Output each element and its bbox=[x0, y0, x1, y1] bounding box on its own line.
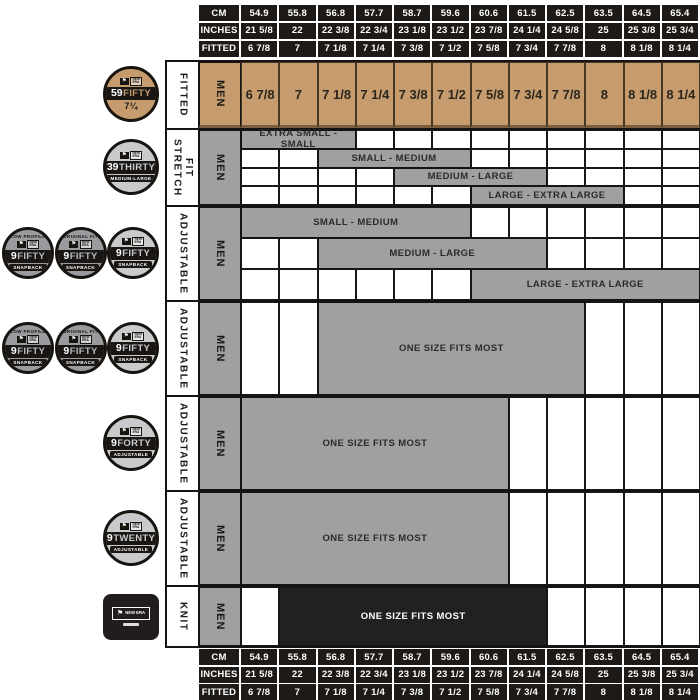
scale-value-cell: 21 5/8 bbox=[241, 23, 277, 39]
scale-value-cell: 6 7/8 bbox=[241, 41, 277, 57]
row-stretch-39thirty: STRETCH FITMENEXTRA SMALL - SMALLSMALL -… bbox=[165, 128, 700, 205]
badge-number: 39 bbox=[107, 161, 119, 173]
new-era-box-logo: NEWERA bbox=[130, 427, 142, 436]
badge-number: 9 bbox=[11, 345, 17, 357]
new-era-box-logo: NEWERA bbox=[80, 335, 92, 344]
size-range-subrow: ONE SIZE FITS MOST bbox=[241, 397, 700, 490]
new-era-box-logo: NEWERA bbox=[132, 237, 144, 246]
scale-value-cell: 62.5 bbox=[547, 649, 583, 665]
scale-value-cell: 55.8 bbox=[279, 5, 315, 21]
empty-size-cell bbox=[279, 269, 317, 300]
scale-value-cell: 24 5/8 bbox=[547, 23, 583, 39]
fitted-size-cell: 6 7/8 bbox=[241, 62, 279, 128]
scale-value-cell: 7 1/8 bbox=[318, 41, 354, 57]
scale-value-cell: 54.9 bbox=[241, 5, 277, 21]
fitted-size-cell: 7 3/8 bbox=[394, 62, 432, 128]
size-range-subrow: ONE SIZE FITS MOST bbox=[241, 302, 700, 395]
badge-9fifty: ORIGINAL FIT⚑NEWERA9FIFTYSNAPBACK bbox=[55, 322, 107, 374]
empty-size-cell bbox=[547, 587, 585, 646]
scale-value-cell: 23 1/2 bbox=[432, 23, 468, 39]
empty-size-cell bbox=[662, 302, 700, 395]
badge-name-band: 59FIFTY bbox=[104, 87, 159, 100]
badge-sub-label: SNAPBACK bbox=[62, 359, 99, 366]
scale-value-cell: 8 1/8 bbox=[624, 41, 660, 57]
category-label-adjustable-9forty: ADJUSTABLE bbox=[165, 397, 199, 490]
scale-value-cell: 58.7 bbox=[394, 5, 430, 21]
new-era-logo-box: ⚑NEW ERA bbox=[112, 607, 150, 620]
scale-value-cell: 22 3/4 bbox=[356, 23, 392, 39]
empty-size-cell bbox=[585, 397, 623, 490]
category-label-knit: KNIT bbox=[165, 587, 199, 646]
scale-row-label: INCHES bbox=[199, 667, 239, 683]
badge-sub-label: MEDIUM-LARGE bbox=[106, 175, 155, 182]
scale-value-cell: 58.7 bbox=[394, 649, 430, 665]
empty-size-cell bbox=[662, 149, 700, 168]
size-range-bar: SMALL - MEDIUM bbox=[241, 207, 471, 238]
size-range-subrow: MEDIUM - LARGE bbox=[241, 168, 700, 187]
empty-size-cell bbox=[356, 130, 394, 149]
size-range-bar: MEDIUM - LARGE bbox=[318, 238, 548, 269]
row-adjustable-9twenty: ADJUSTABLEMENONE SIZE FITS MOST bbox=[165, 490, 700, 585]
fitted-size-cell: 7 7/8 bbox=[547, 62, 585, 128]
new-era-box-logo: NEWERA bbox=[130, 151, 142, 160]
badge-9fifty: LOW PROFILE⚑NEWERA9FIFTYSNAPBACK bbox=[2, 322, 54, 374]
scale-value-cell: 23 1/8 bbox=[394, 667, 430, 683]
flag-icon: ⚑ bbox=[120, 152, 129, 159]
category-label-stretch-39thirty: STRETCH FIT bbox=[165, 130, 199, 205]
empty-size-cell bbox=[509, 397, 547, 490]
row-adjustable-9forty: ADJUSTABLEMENONE SIZE FITS MOST bbox=[165, 395, 700, 490]
empty-size-cell bbox=[624, 186, 662, 205]
scale-value-cell: 25 bbox=[585, 23, 621, 39]
empty-size-cell bbox=[547, 492, 585, 585]
empty-size-cell bbox=[662, 186, 700, 205]
scale-value-cell: 7 7/8 bbox=[547, 41, 583, 57]
scale-value-cell: 7 3/8 bbox=[394, 41, 430, 57]
badge-9twenty: ⚑NEWERA9TWENTYADJUSTABLE bbox=[103, 510, 159, 566]
size-grid-adjustable-9forty: ONE SIZE FITS MOST bbox=[241, 397, 700, 490]
badge-name: FIFTY bbox=[122, 343, 150, 354]
new-era-box-logo: NEWERA bbox=[130, 522, 142, 531]
category-label-fitted-59fifty: FITTED bbox=[165, 62, 199, 128]
badge-lane-adjustable-9fifty-snapback: LOW PROFILE⚑NEWERA9FIFTYSNAPBACKORIGINAL… bbox=[0, 205, 161, 300]
new-era-logos: ⚑NEWERA bbox=[120, 522, 143, 531]
scale-value-cell: 25 bbox=[585, 667, 621, 683]
row-fitted-59fifty: FITTEDMEN6 7/877 1/87 1/47 3/87 1/27 5/8… bbox=[165, 60, 700, 128]
size-range-bar: LARGE - EXTRA LARGE bbox=[471, 269, 700, 300]
new-era-logos: ⚑NEWERA bbox=[120, 151, 143, 160]
empty-size-cell bbox=[241, 587, 279, 646]
badge-name: FORTY bbox=[117, 438, 151, 449]
fitted-size-cell: 7 3/4 bbox=[509, 62, 547, 128]
scale-value-cell: 64.5 bbox=[624, 5, 660, 21]
scale-value-cell: 7 bbox=[279, 684, 315, 700]
scale-value-cell: 55.8 bbox=[279, 649, 315, 665]
badge-name-band: 9TWENTY bbox=[104, 532, 159, 545]
badge-name-band: 9FIFTY bbox=[108, 342, 159, 355]
flag-icon: ⚑ bbox=[69, 241, 78, 248]
badge-name: FIFTY bbox=[123, 88, 151, 99]
scale-value-cell: 7 1/8 bbox=[318, 684, 354, 700]
scale-value-cell: 24 1/4 bbox=[509, 23, 545, 39]
scale-value-cell: 8 bbox=[585, 41, 621, 57]
scale-value-cell: 6 7/8 bbox=[241, 684, 277, 700]
badge-sub-label: SNAPBACK bbox=[9, 264, 46, 271]
fitted-sizes-row: 6 7/877 1/87 1/47 3/87 1/27 5/87 3/47 7/… bbox=[241, 62, 700, 128]
scale-row-label: CM bbox=[199, 5, 239, 21]
empty-size-cell bbox=[471, 207, 509, 238]
empty-size-cell bbox=[585, 207, 623, 238]
badge-lane-adjustable-9twenty: ⚑NEWERA9TWENTYADJUSTABLE bbox=[0, 490, 161, 585]
empty-size-cell bbox=[318, 269, 356, 300]
badge-sub-label: SNAPBACK bbox=[62, 264, 99, 271]
scale-row-cm: CM54.955.856.857.758.759.660.661.562.563… bbox=[199, 5, 700, 21]
empty-size-cell bbox=[471, 149, 509, 168]
empty-size-cell bbox=[394, 186, 432, 205]
scale-value-cell: 62.5 bbox=[547, 5, 583, 21]
empty-size-cell bbox=[547, 207, 585, 238]
empty-size-cell bbox=[241, 238, 279, 269]
badge-59fifty: ⚑NEWERA59FIFTY7¼ bbox=[103, 66, 159, 122]
fitted-size-cell: 7 1/8 bbox=[318, 62, 356, 128]
category-label-text: KNIT bbox=[177, 602, 189, 631]
empty-size-cell bbox=[662, 587, 700, 646]
scale-value-cell: 8 1/8 bbox=[624, 684, 660, 700]
empty-size-cell bbox=[279, 238, 317, 269]
brand-text: NEW ERA bbox=[125, 611, 145, 616]
empty-size-cell bbox=[624, 238, 662, 269]
empty-size-cell bbox=[662, 238, 700, 269]
scale-value-cell: 24 5/8 bbox=[547, 667, 583, 683]
badge-number: 9 bbox=[63, 345, 69, 357]
new-era-logos: ⚑NEWERA bbox=[120, 77, 143, 86]
empty-size-cell bbox=[662, 168, 700, 187]
empty-size-cell bbox=[471, 130, 509, 149]
size-chart-body: FITTEDMEN6 7/877 1/87 1/47 3/87 1/27 5/8… bbox=[165, 60, 700, 648]
size-range-subrow: ONE SIZE FITS MOST bbox=[241, 492, 700, 585]
scale-value-cell: 64.5 bbox=[624, 649, 660, 665]
badge-sub-label: SNAPBACK bbox=[114, 356, 151, 363]
badge-name: FIFTY bbox=[70, 346, 98, 357]
gender-label: MEN bbox=[214, 80, 226, 107]
fitted-size-cell: 8 1/4 bbox=[662, 62, 700, 128]
badge-number: 9 bbox=[111, 437, 117, 449]
flag-icon: ⚑ bbox=[122, 333, 131, 340]
empty-size-cell bbox=[585, 149, 623, 168]
new-era-box-logo: NEWERA bbox=[27, 240, 39, 249]
size-range-bar: ONE SIZE FITS MOST bbox=[318, 302, 586, 395]
scale-row-label: CM bbox=[199, 649, 239, 665]
badge-lane-knit: ⚑NEW ERA bbox=[0, 585, 161, 648]
empty-size-cell bbox=[547, 168, 585, 187]
empty-size-cell bbox=[585, 168, 623, 187]
badge-name-band: 9FIFTY bbox=[55, 250, 106, 263]
empty-size-cell bbox=[356, 168, 394, 187]
scale-value-cell: 7 1/4 bbox=[356, 684, 392, 700]
badge-name: TWENTY bbox=[113, 533, 155, 544]
scale-value-cell: 59.6 bbox=[432, 649, 468, 665]
gender-label: MEN bbox=[214, 430, 226, 457]
gender-label: MEN bbox=[214, 335, 226, 362]
scale-row-label: FITTED bbox=[199, 41, 239, 57]
badge-lane-adjustable-9fifty-osfm: LOW PROFILE⚑NEWERA9FIFTYSNAPBACKORIGINAL… bbox=[0, 300, 161, 395]
new-era-logos: ⚑NEWERA bbox=[122, 332, 145, 341]
category-label-text: ADJUSTABLE bbox=[177, 213, 189, 294]
empty-size-cell bbox=[585, 492, 623, 585]
scale-value-cell: 63.5 bbox=[585, 5, 621, 21]
badge-number: 9 bbox=[63, 250, 69, 262]
scale-row-fitted: FITTED6 7/877 1/87 1/47 3/87 1/27 5/87 3… bbox=[199, 41, 700, 57]
badge-lane-fitted-59fifty: ⚑NEWERA59FIFTY7¼ bbox=[0, 60, 161, 128]
size-range-subrow: EXTRA SMALL - SMALL bbox=[241, 130, 700, 149]
badge-sub-label: ADJUSTABLE bbox=[110, 546, 153, 553]
flag-icon: ⚑ bbox=[120, 428, 129, 435]
scale-value-cell: 7 1/2 bbox=[432, 684, 468, 700]
badge-name-band: 9FIFTY bbox=[55, 345, 106, 358]
scale-value-cell: 24 1/4 bbox=[509, 667, 545, 683]
scale-value-cell: 57.7 bbox=[356, 5, 392, 21]
row-knit: KNITMENONE SIZE FITS MOST bbox=[165, 585, 700, 648]
footer-scale-table: CM54.955.856.857.758.759.660.661.562.563… bbox=[199, 649, 700, 700]
badge-name: FIFTY bbox=[17, 251, 45, 262]
header-scale-table: CM54.955.856.857.758.759.660.661.562.563… bbox=[199, 5, 700, 57]
category-label-text: STRETCH FIT bbox=[171, 139, 194, 197]
badge-sub-label: 7¼ bbox=[124, 101, 137, 111]
scale-value-cell: 25 3/4 bbox=[662, 667, 698, 683]
scale-value-cell: 25 3/8 bbox=[624, 667, 660, 683]
scale-value-cell: 23 7/8 bbox=[471, 667, 507, 683]
empty-size-cell bbox=[318, 168, 356, 187]
badge-9forty: ⚑NEWERA9FORTYADJUSTABLE bbox=[103, 415, 159, 471]
scale-value-cell: 65.4 bbox=[662, 649, 698, 665]
empty-size-cell bbox=[318, 186, 356, 205]
badge-name-band: 9FIFTY bbox=[108, 247, 159, 260]
size-range-subrow: ONE SIZE FITS MOST bbox=[241, 587, 700, 646]
badge-name: FIFTY bbox=[122, 248, 150, 259]
scale-value-cell: 7 3/4 bbox=[509, 41, 545, 57]
size-range-subrow: LARGE - EXTRA LARGE bbox=[241, 269, 700, 300]
empty-size-cell bbox=[624, 397, 662, 490]
new-era-logos: ⚑NEWERA bbox=[17, 335, 40, 344]
scale-row-inches: INCHES21 5/82222 3/822 3/423 1/823 1/223… bbox=[199, 667, 700, 683]
badge-9fifty: LOW PROFILE⚑NEWERA9FIFTYSNAPBACK bbox=[2, 227, 54, 279]
empty-size-cell bbox=[662, 492, 700, 585]
scale-value-cell: 61.5 bbox=[509, 649, 545, 665]
badge-9fifty: ⚑NEWERA9FIFTYSNAPBACK bbox=[107, 322, 159, 374]
new-era-box-logo: NEWERA bbox=[27, 335, 39, 344]
category-label-text: FITTED bbox=[177, 73, 189, 117]
scale-value-cell: 7 bbox=[279, 41, 315, 57]
scale-value-cell: 22 3/8 bbox=[318, 23, 354, 39]
gender-label: MEN bbox=[214, 525, 226, 552]
scale-value-cell: 8 bbox=[585, 684, 621, 700]
badge-knit-patch: ⚑NEW ERA bbox=[103, 594, 159, 640]
fitted-size-cell: 7 bbox=[279, 62, 317, 128]
badge-number: 9 bbox=[116, 342, 122, 354]
empty-size-cell bbox=[624, 168, 662, 187]
badge-9fifty: ORIGINAL FIT⚑NEWERA9FIFTYSNAPBACK bbox=[55, 227, 107, 279]
row-adjustable-9fifty-osfm: ADJUSTABLEMENONE SIZE FITS MOST bbox=[165, 300, 700, 395]
empty-size-cell bbox=[241, 269, 279, 300]
empty-size-cell bbox=[624, 587, 662, 646]
size-grid-fitted-59fifty: 6 7/877 1/87 1/47 3/87 1/27 5/87 3/47 7/… bbox=[241, 62, 700, 128]
category-label-text: ADJUSTABLE bbox=[177, 308, 189, 389]
gender-label: MEN bbox=[214, 603, 226, 630]
empty-size-cell bbox=[394, 130, 432, 149]
empty-size-cell bbox=[279, 186, 317, 205]
scale-value-cell: 57.7 bbox=[356, 649, 392, 665]
scale-value-cell: 23 7/8 bbox=[471, 23, 507, 39]
empty-size-cell bbox=[547, 130, 585, 149]
empty-size-cell bbox=[585, 587, 623, 646]
flag-icon: ⚑ bbox=[17, 336, 26, 343]
new-era-logos: ⚑NEWERA bbox=[17, 240, 40, 249]
scale-value-cell: 7 5/8 bbox=[471, 684, 507, 700]
empty-size-cell bbox=[547, 149, 585, 168]
scale-value-cell: 7 7/8 bbox=[547, 684, 583, 700]
empty-size-cell bbox=[547, 397, 585, 490]
gender-cell: MEN bbox=[199, 397, 241, 490]
badge-name: FIFTY bbox=[70, 251, 98, 262]
scale-value-cell: 8 1/4 bbox=[662, 41, 698, 57]
gender-cell: MEN bbox=[199, 62, 241, 128]
empty-size-cell bbox=[662, 130, 700, 149]
badge-lane-adjustable-9forty: ⚑NEWERA9FORTYADJUSTABLE bbox=[0, 395, 161, 490]
gender-cell: MEN bbox=[199, 587, 241, 646]
empty-size-cell bbox=[509, 207, 547, 238]
empty-size-cell bbox=[662, 397, 700, 490]
empty-size-cell bbox=[624, 492, 662, 585]
empty-size-cell bbox=[279, 168, 317, 187]
new-era-box-logo: NEWERA bbox=[80, 240, 92, 249]
empty-size-cell bbox=[624, 130, 662, 149]
size-grid-knit: ONE SIZE FITS MOST bbox=[241, 587, 700, 646]
scale-value-cell: 23 1/8 bbox=[394, 23, 430, 39]
empty-size-cell bbox=[432, 130, 470, 149]
badge-name: THIRTY bbox=[119, 162, 155, 173]
empty-size-cell bbox=[547, 238, 585, 269]
new-era-logos: ⚑NEWERA bbox=[69, 240, 92, 249]
badge-name: FIFTY bbox=[17, 346, 45, 357]
category-label-text: ADJUSTABLE bbox=[177, 403, 189, 484]
gender-cell: MEN bbox=[199, 130, 241, 205]
scale-value-cell: 8 1/4 bbox=[662, 684, 698, 700]
scale-value-cell: 7 1/4 bbox=[356, 41, 392, 57]
fitted-size-cell: 7 1/2 bbox=[432, 62, 470, 128]
empty-size-cell bbox=[241, 168, 279, 187]
size-range-bar: ONE SIZE FITS MOST bbox=[241, 492, 509, 585]
empty-size-cell bbox=[509, 149, 547, 168]
scale-value-cell: 56.8 bbox=[318, 649, 354, 665]
empty-size-cell bbox=[279, 149, 317, 168]
badge-39thirty: ⚑NEWERA39THIRTYMEDIUM-LARGE bbox=[103, 139, 159, 195]
size-range-subrow: SMALL - MEDIUM bbox=[241, 207, 700, 238]
badge-name-band: 39THIRTY bbox=[104, 161, 159, 174]
size-range-bar: ONE SIZE FITS MOST bbox=[279, 587, 547, 646]
empty-size-cell bbox=[509, 492, 547, 585]
empty-size-cell bbox=[585, 302, 623, 395]
category-label-adjustable-9fifty-snapback: ADJUSTABLE bbox=[165, 207, 199, 300]
size-range-bar: ONE SIZE FITS MOST bbox=[241, 397, 509, 490]
empty-size-cell bbox=[624, 302, 662, 395]
empty-size-cell bbox=[432, 269, 470, 300]
row-adjustable-9fifty-snapback: ADJUSTABLEMENSMALL - MEDIUMMEDIUM - LARG… bbox=[165, 205, 700, 300]
empty-size-cell bbox=[432, 186, 470, 205]
scale-value-cell: 22 3/4 bbox=[356, 667, 392, 683]
scale-value-cell: 61.5 bbox=[509, 5, 545, 21]
badge-9fifty: ⚑NEWERA9FIFTYSNAPBACK bbox=[107, 227, 159, 279]
scale-value-cell: 60.6 bbox=[471, 5, 507, 21]
category-label-adjustable-9fifty-osfm: ADJUSTABLE bbox=[165, 302, 199, 395]
fitted-size-cell: 7 5/8 bbox=[471, 62, 509, 128]
scale-row-label: FITTED bbox=[199, 684, 239, 700]
scale-value-cell: 22 bbox=[279, 667, 315, 683]
empty-size-cell bbox=[585, 130, 623, 149]
flag-icon: ⚑ bbox=[122, 238, 131, 245]
size-grid-adjustable-9fifty-snapback: SMALL - MEDIUMMEDIUM - LARGELARGE - EXTR… bbox=[241, 207, 700, 300]
fitted-size-cell: 8 bbox=[585, 62, 623, 128]
empty-size-cell bbox=[662, 207, 700, 238]
empty-size-cell bbox=[394, 269, 432, 300]
scale-value-cell: 7 5/8 bbox=[471, 41, 507, 57]
scale-value-cell: 60.6 bbox=[471, 649, 507, 665]
scale-row-label: INCHES bbox=[199, 23, 239, 39]
size-range-bar: SMALL - MEDIUM bbox=[318, 149, 471, 168]
scale-row-fitted: FITTED6 7/877 1/87 1/47 3/87 1/27 5/87 3… bbox=[199, 684, 700, 700]
badge-number: 9 bbox=[116, 247, 122, 259]
scale-row-inches: INCHES21 5/82222 3/822 3/423 1/823 1/223… bbox=[199, 23, 700, 39]
scale-value-cell: 22 3/8 bbox=[318, 667, 354, 683]
empty-size-cell bbox=[356, 186, 394, 205]
flag-icon: ⚑ bbox=[69, 336, 78, 343]
scale-value-cell: 63.5 bbox=[585, 649, 621, 665]
scale-value-cell: 25 3/4 bbox=[662, 23, 698, 39]
category-label-adjustable-9twenty: ADJUSTABLE bbox=[165, 492, 199, 585]
empty-size-cell bbox=[585, 238, 623, 269]
scale-value-cell: 7 1/2 bbox=[432, 41, 468, 57]
fitted-size-cell: 7 1/4 bbox=[356, 62, 394, 128]
badge-number: 9 bbox=[107, 532, 113, 544]
badge-sub-label: SNAPBACK bbox=[9, 359, 46, 366]
badge-lane-stretch-39thirty: ⚑NEWERA39THIRTYMEDIUM-LARGE bbox=[0, 128, 161, 205]
new-era-box-logo: NEWERA bbox=[132, 332, 144, 341]
empty-size-cell bbox=[356, 269, 394, 300]
gender-label: MEN bbox=[214, 240, 226, 267]
size-grid-adjustable-9fifty-osfm: ONE SIZE FITS MOST bbox=[241, 302, 700, 395]
badge-number: 9 bbox=[11, 250, 17, 262]
fitted-size-cell: 8 1/8 bbox=[624, 62, 662, 128]
badge-number: 59 bbox=[111, 87, 123, 99]
flag-icon: ⚑ bbox=[17, 241, 26, 248]
scale-value-cell: 7 3/4 bbox=[509, 684, 545, 700]
new-era-logos: ⚑NEWERA bbox=[120, 427, 143, 436]
flag-icon: ⚑ bbox=[117, 610, 123, 617]
scale-value-cell: 59.6 bbox=[432, 5, 468, 21]
badge-sub-label: ADJUSTABLE bbox=[110, 451, 153, 458]
size-grid-stretch-39thirty: EXTRA SMALL - SMALLSMALL - MEDIUMMEDIUM … bbox=[241, 130, 700, 205]
new-era-logos: ⚑NEWERA bbox=[122, 237, 145, 246]
empty-size-cell bbox=[624, 149, 662, 168]
badge-sub-label: SNAPBACK bbox=[114, 261, 151, 268]
flag-icon: ⚑ bbox=[120, 523, 129, 530]
category-label-text: ADJUSTABLE bbox=[177, 498, 189, 579]
size-range-subrow: MEDIUM - LARGE bbox=[241, 238, 700, 269]
scale-value-cell: 54.9 bbox=[241, 649, 277, 665]
scale-value-cell: 65.4 bbox=[662, 5, 698, 21]
size-range-subrow: LARGE - EXTRA LARGE bbox=[241, 186, 700, 205]
scale-value-cell: 25 3/8 bbox=[624, 23, 660, 39]
empty-size-cell bbox=[241, 149, 279, 168]
